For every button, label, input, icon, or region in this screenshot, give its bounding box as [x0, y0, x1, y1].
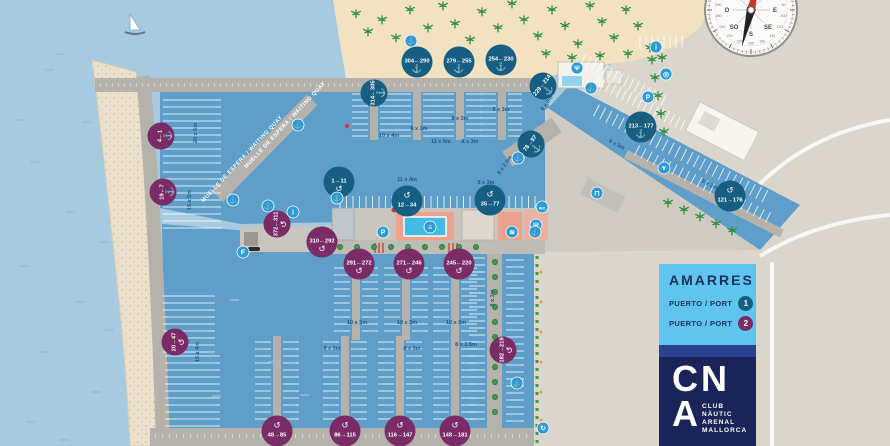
compass-degree-label: 120: [777, 25, 783, 29]
berth-range-badge: 86→115↺: [330, 416, 361, 446]
anchor-icon: ⚓: [227, 194, 239, 206]
svg-text:⚓: ⚓: [163, 131, 173, 142]
moored-boat: [248, 247, 260, 251]
port2-badge: 2: [738, 316, 753, 331]
berth-range-badge: 48→85↺: [262, 416, 293, 446]
legend-item-port2: PUERTO / PORT 2: [669, 316, 756, 331]
tree-icon: [337, 244, 342, 249]
anchor-icon: ⚓: [262, 200, 274, 212]
logo-band: [659, 345, 756, 357]
berth-dimension-label: 10 x 3m: [347, 320, 367, 326]
berth-range-badge: 19←7⚓: [150, 179, 177, 206]
berth-dimension-label: 15 x 4m: [195, 342, 201, 362]
svg-text:≡: ≡: [428, 225, 432, 232]
tree-icon: [492, 394, 497, 399]
parking-icon: P: [377, 226, 389, 238]
marina-map: 20 x 6m15 x 5m15 x 4m10 x 4m8 x 3m8 x 3m…: [0, 0, 890, 446]
berth-dimension-label: 11 x 6m: [431, 139, 451, 145]
anchor-icon: ⚓: [511, 377, 523, 389]
anchor-icon: ⚓: [512, 152, 524, 164]
club-name: CLUB NÀUTIC ARENAL MALLORCA: [702, 403, 747, 434]
travel-lift-icon: ⊓: [591, 187, 603, 199]
wc-icon: WC: [536, 201, 548, 213]
svg-text:↺: ↺: [273, 420, 280, 430]
svg-text:↺: ↺: [505, 346, 515, 353]
berth-dimension-label: 8 x 3m: [403, 346, 420, 352]
berth-range-badge: 372←311↺: [264, 211, 291, 238]
port1-badge: 1: [738, 296, 753, 311]
compass-degree-label: 260: [716, 14, 722, 18]
anchor-icon: ⚓: [292, 119, 304, 131]
moorings-legend: AMARRES PUERTO / PORT 1 PUERTO / PORT 2: [659, 264, 756, 345]
svg-text:⚓: ⚓: [333, 194, 342, 203]
berth-range-badge: 254←230⚓: [486, 45, 517, 76]
svg-text:↺: ↺: [177, 338, 187, 345]
tree-icon: [492, 379, 497, 384]
svg-text:▼: ▼: [661, 166, 668, 173]
compass-degree-label: 160: [759, 40, 765, 44]
berth-range-badge: 4←1⚓: [148, 123, 175, 150]
club-name-line: MALLORCA: [702, 427, 747, 434]
legend-item-port1: PUERTO / PORT 1: [669, 296, 756, 311]
berth-dimension-label: 8 x 3m: [490, 289, 496, 306]
svg-text:⚓: ⚓: [412, 64, 423, 74]
svg-text:86→115: 86→115: [334, 433, 356, 439]
svg-text:⚓: ⚓: [229, 196, 238, 205]
tree-icon: [492, 364, 497, 369]
compass-degree-label: 180: [748, 42, 754, 46]
svg-text:↺: ↺: [486, 189, 493, 199]
svg-text:↺: ↺: [279, 220, 289, 227]
berth-range-badge: 271←246↺: [394, 249, 425, 280]
svg-text:WC: WC: [539, 206, 546, 211]
svg-text:↺: ↺: [405, 266, 412, 276]
berth-range-badge: 35→77↺: [475, 185, 506, 216]
svg-text:⚓: ⚓: [407, 37, 416, 46]
svg-text:P: P: [381, 230, 386, 237]
pool-ladder-icon: ≡: [424, 221, 436, 233]
svg-text:≋: ≋: [509, 230, 515, 237]
berth-dimension-label: 10 x 3m: [397, 320, 417, 326]
restaurant-icon: Ψ: [571, 62, 583, 74]
berth-range-badge: 20→47↺: [162, 329, 189, 356]
svg-text:⚓: ⚓: [587, 84, 596, 93]
compass-degree-label: 140: [769, 34, 775, 38]
svg-text:⊓: ⊓: [594, 191, 599, 198]
svg-text:⚓: ⚓: [496, 62, 507, 72]
svg-text:↺: ↺: [396, 420, 403, 430]
tree-icon: [473, 244, 478, 249]
svg-text:35→77: 35→77: [481, 202, 500, 208]
berth-dimension-label: 8 x 3m: [323, 346, 340, 352]
berth-range-badge: 121→176↺: [715, 181, 746, 212]
svg-text:↺: ↺: [355, 266, 362, 276]
svg-text:↺: ↺: [726, 185, 733, 195]
svg-text:⚓: ⚓: [264, 202, 273, 211]
svg-text:↺: ↺: [341, 420, 348, 430]
shower-icon: ≋: [506, 226, 518, 238]
berth-dimension-label: 10 x 4m: [379, 133, 399, 139]
club-name-line: CLUB: [702, 403, 747, 410]
tree-icon: [492, 319, 497, 324]
compass-degree-label: 100: [780, 14, 786, 18]
svg-text:⚓: ⚓: [376, 88, 386, 99]
berth-dimension-label: 20 x 6m: [193, 123, 199, 143]
club-name-line: NÀUTIC: [702, 411, 747, 418]
logo-letters-cn: CN: [672, 361, 730, 397]
berth-range-badge: 310←292↺: [307, 227, 338, 258]
svg-text:↺: ↺: [318, 244, 325, 254]
parking-icon: P: [642, 91, 654, 103]
anchor-icon: ⚓: [331, 192, 343, 204]
berth-range-badge: 291←272↺: [344, 249, 375, 280]
logo-letter-a: A: [672, 397, 698, 431]
club-logo: CN A CLUB NÀUTIC ARENAL MALLORCA: [659, 345, 756, 446]
svg-text:⚓: ⚓: [513, 379, 522, 388]
slipway-icon: ▼: [658, 162, 670, 174]
legend-label: PUERTO / PORT: [669, 299, 732, 308]
svg-text:↺: ↺: [451, 420, 458, 430]
anchor-icon: ⚓: [585, 82, 597, 94]
compass-cardinal-label: SO: [730, 25, 739, 31]
svg-text:⚓: ⚓: [165, 187, 175, 198]
compass-degree-label: 240: [719, 25, 725, 29]
svg-text:◎: ◎: [663, 72, 669, 79]
berth-dimension-label: 8 x 3m: [461, 139, 478, 145]
compass-degree-label: 220: [727, 34, 733, 38]
tree-icon: [439, 244, 444, 249]
svg-text:Ψ: Ψ: [574, 66, 580, 73]
compass-cardinal-label: SE: [764, 25, 772, 31]
compass-cardinal-label: O: [725, 8, 730, 14]
svg-text:⚓: ⚓: [514, 154, 523, 163]
info-icon: i: [287, 206, 299, 218]
svg-text:⚓: ⚓: [294, 121, 303, 130]
svg-text:i: i: [292, 210, 294, 217]
svg-text:F: F: [241, 250, 246, 257]
info-icon: i: [650, 41, 662, 53]
berth-dimension-label: 8 x 3m: [451, 116, 468, 122]
lifebuoy-icon: ◎: [660, 68, 672, 80]
berth-range-badge: 182→219↺: [490, 337, 517, 364]
anchor-icon: ⚓: [529, 226, 541, 238]
berth-dimension-label: 8 x 3m: [492, 107, 509, 113]
fuel-icon: F: [237, 246, 249, 258]
berth-range-badge: 304←290⚓: [402, 47, 433, 78]
compass-degree-label: 200: [737, 40, 743, 44]
anchor-icon: ⚓: [405, 35, 417, 47]
berth-range-badge: 12→34↺: [392, 186, 423, 217]
berth-dimension-label: 11 x 4m: [397, 177, 417, 183]
berth-range-badge: 314←305⚓: [361, 80, 388, 107]
tree-icon: [492, 409, 497, 414]
svg-text:121→176: 121→176: [717, 198, 743, 204]
svg-text:i: i: [655, 45, 657, 52]
compass-degree-label: 280: [716, 3, 722, 7]
compass-degree-label: 80: [781, 3, 785, 7]
svg-text:⚓: ⚓: [531, 228, 540, 237]
tree-icon: [422, 244, 427, 249]
berth-range-badge: 245←220↺: [444, 249, 475, 280]
svg-text:48→85: 48→85: [268, 433, 287, 439]
svg-text:116→147: 116→147: [388, 433, 413, 439]
tree-icon: [371, 244, 376, 249]
berth-dimension-label: 15 x 5m: [187, 190, 193, 210]
berth-range-badge: 116→147↺: [385, 416, 416, 446]
fuel-dock-hut: [244, 232, 258, 246]
compass-cardinal-label: S: [749, 32, 753, 38]
legend-title: AMARRES: [669, 272, 756, 288]
svg-text:↺: ↺: [403, 190, 410, 200]
svg-text:↺: ↺: [455, 266, 462, 276]
compass-cardinal-label: E: [773, 8, 777, 14]
svg-text:148→181: 148→181: [442, 433, 468, 439]
tree-icon: [388, 244, 393, 249]
berth-range-badge: 213←177⚓: [626, 112, 657, 143]
legend-label: PUERTO / PORT: [669, 319, 732, 328]
club-name-line: ARENAL: [702, 419, 747, 426]
tree-icon: [492, 259, 497, 264]
svg-text:12→34: 12→34: [398, 203, 417, 209]
svg-text:P: P: [646, 95, 651, 102]
berth-dimension-label: 8 x 2.5m: [455, 342, 477, 348]
red-buoy: [345, 124, 349, 128]
berth-range-badge: 279←255⚓: [444, 47, 475, 78]
tree-icon: [492, 274, 497, 279]
svg-text:⚓: ⚓: [636, 129, 647, 139]
berth-dimension-label: 8 x 3m: [410, 126, 427, 132]
berth-range-badge: 148→181↺: [440, 416, 471, 446]
recycling-icon: ↻: [537, 422, 549, 434]
berth-dimension-label: 10 x 3m: [446, 320, 466, 326]
svg-text:⚓: ⚓: [454, 64, 465, 74]
svg-text:↻: ↻: [540, 426, 546, 433]
